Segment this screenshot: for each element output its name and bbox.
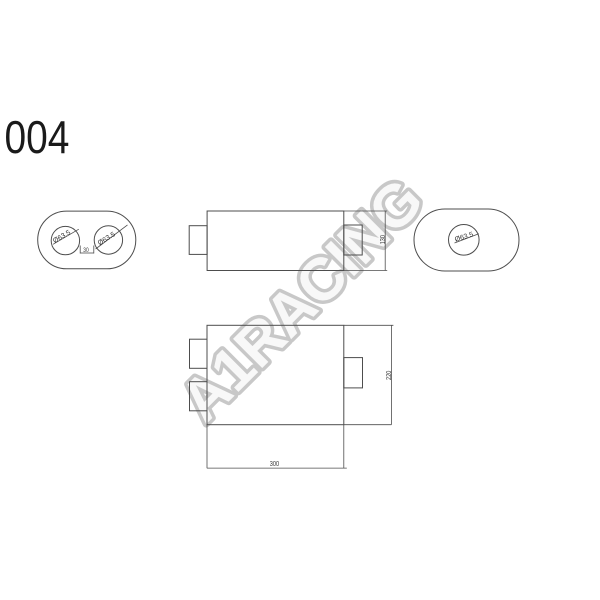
svg-text:300: 300 — [270, 460, 280, 468]
svg-text:30: 30 — [83, 247, 88, 254]
svg-text:Ø63.5: Ø63.5 — [454, 231, 474, 243]
svg-text:Ø63.5: Ø63.5 — [97, 231, 117, 247]
svg-text:130: 130 — [380, 235, 388, 245]
svg-text:004: 004 — [5, 112, 70, 164]
svg-text:220: 220 — [386, 370, 394, 380]
